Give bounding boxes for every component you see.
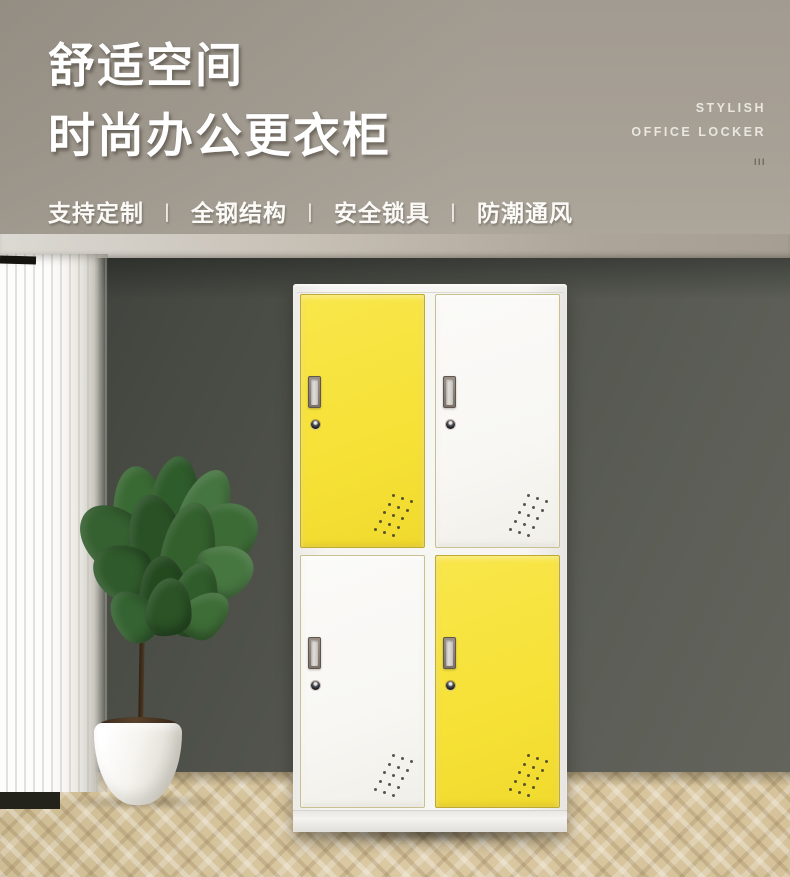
vent-dot <box>527 514 530 517</box>
vent-dot <box>388 523 391 526</box>
handle-recess <box>311 379 318 405</box>
vent-dot <box>527 494 530 497</box>
vent-dot <box>541 769 544 772</box>
vent-dot <box>518 531 521 534</box>
keyhole-lock-icon <box>311 420 320 429</box>
vent-dot <box>532 766 535 769</box>
handle-recess <box>446 640 453 666</box>
vent-dot <box>518 791 521 794</box>
keyhole-lock-icon <box>311 681 320 690</box>
vent-dot <box>397 766 400 769</box>
vent-dot <box>536 777 539 780</box>
vent-dot <box>383 511 386 514</box>
feature-separator: 丨 <box>300 197 321 226</box>
ceiling-strip <box>0 234 790 258</box>
vent-dot <box>383 531 386 534</box>
vent-dot <box>392 754 395 757</box>
vent-dot <box>401 777 404 780</box>
vent-dot <box>545 760 548 763</box>
feature-list: 支持定制丨全钢结构丨安全锁具丨防潮通风 <box>48 194 573 228</box>
vent-dot <box>406 769 409 772</box>
english-tagline-line1: STYLISH <box>631 97 766 121</box>
feature-item: 支持定制 <box>48 200 144 226</box>
vent-dot <box>514 780 517 783</box>
vent-dot <box>388 783 391 786</box>
handle-recess <box>446 379 453 405</box>
vent-dot <box>374 788 377 791</box>
vent-dot <box>545 500 548 503</box>
vent-dot <box>532 506 535 509</box>
vent-dot <box>523 783 526 786</box>
door-handle <box>443 637 456 669</box>
locker-door-bottom-left <box>300 555 425 808</box>
keyhole-lock-icon <box>446 681 455 690</box>
handle-recess <box>311 640 318 666</box>
vent-dot <box>406 509 409 512</box>
vent-dot <box>397 786 400 789</box>
feature-separator: 丨 <box>443 197 464 226</box>
feature-item: 安全锁具 <box>334 200 430 226</box>
feature-item: 全钢结构 <box>191 200 287 226</box>
vent-dot <box>532 786 535 789</box>
headline-line2: 时尚办公更衣柜 <box>48 110 391 162</box>
white-planter-pot <box>94 723 182 805</box>
locker-cabinet <box>293 284 567 832</box>
vent-dot <box>374 528 377 531</box>
vent-dot <box>397 526 400 529</box>
door-handle <box>308 637 321 669</box>
vent-holes-icon <box>372 488 414 538</box>
vent-dot <box>527 794 530 797</box>
english-tagline: STYLISH OFFICE LOCKER III <box>631 97 766 171</box>
vent-dot <box>392 534 395 537</box>
vent-dot <box>392 794 395 797</box>
vent-dot <box>388 503 391 506</box>
vent-dot <box>536 517 539 520</box>
vent-dot <box>527 774 530 777</box>
vent-dot <box>388 763 391 766</box>
vent-dot <box>401 497 404 500</box>
vent-dot <box>532 526 535 529</box>
vent-dot <box>518 771 521 774</box>
locker-door-top-left <box>300 294 425 548</box>
vent-dot <box>401 517 404 520</box>
vent-holes-icon <box>507 488 549 538</box>
curtain-rod <box>0 256 36 265</box>
tick-marks-icon: III <box>631 154 766 171</box>
feature-separator: 丨 <box>157 197 178 226</box>
vent-dot <box>541 509 544 512</box>
vent-dot <box>392 774 395 777</box>
vent-dot <box>383 791 386 794</box>
vent-dot <box>527 534 530 537</box>
vent-dot <box>410 760 413 763</box>
vent-dot <box>379 780 382 783</box>
vent-dot <box>518 511 521 514</box>
door-handle <box>308 376 321 408</box>
vent-holes-icon <box>507 748 549 798</box>
cabinet-plinth <box>293 810 567 832</box>
vent-dot <box>397 506 400 509</box>
vent-dot <box>401 757 404 760</box>
vent-dot <box>509 528 512 531</box>
locker-door-top-right <box>435 294 560 548</box>
vent-dot <box>410 500 413 503</box>
door-handle <box>443 376 456 408</box>
vent-dot <box>536 757 539 760</box>
headline-line1: 舒适空间 <box>48 40 244 92</box>
cabinet-top-seam <box>297 292 563 293</box>
vent-dot <box>523 523 526 526</box>
vent-dot <box>392 494 395 497</box>
english-tagline-line2: OFFICE LOCKER <box>631 121 766 145</box>
vent-dot <box>523 503 526 506</box>
vent-dot <box>379 520 382 523</box>
vent-dot <box>514 520 517 523</box>
fiddle-leaf-fig-plant <box>50 450 270 812</box>
vent-dot <box>383 771 386 774</box>
product-banner: 舒适空间 时尚办公更衣柜 支持定制丨全钢结构丨安全锁具丨防潮通风 STYLISH… <box>0 0 790 877</box>
vent-dot <box>392 514 395 517</box>
vent-dot <box>523 763 526 766</box>
locker-door-bottom-right <box>435 555 560 808</box>
vent-dot <box>527 754 530 757</box>
keyhole-lock-icon <box>446 420 455 429</box>
feature-item: 防潮通风 <box>477 200 573 226</box>
vent-dot <box>536 497 539 500</box>
header-banner: 舒适空间 时尚办公更衣柜 支持定制丨全钢结构丨安全锁具丨防潮通风 STYLISH… <box>0 0 790 258</box>
vent-dot <box>509 788 512 791</box>
vent-holes-icon <box>372 748 414 798</box>
